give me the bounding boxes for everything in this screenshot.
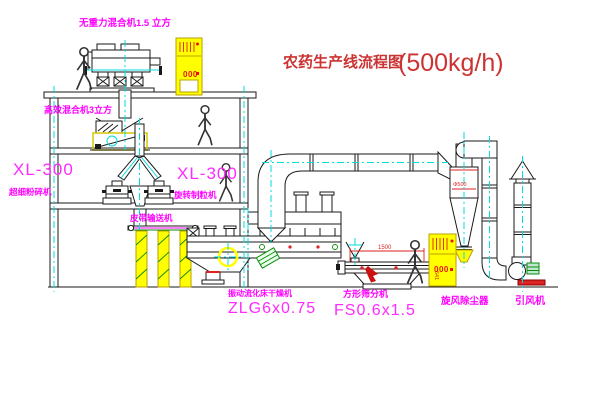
gravity-mixer-machine — [84, 44, 162, 92]
diagram-title: 农药生产线流程图 — [282, 53, 403, 71]
label-granulator-name: 旋转制粒机 — [173, 190, 217, 200]
label-belt-conveyor: 皮带输送机 — [129, 213, 173, 223]
control-cabinet-top — [176, 38, 202, 95]
label-mill-name: 超细粉碎机 — [8, 187, 52, 197]
label-dryer-model: ZLG6x0.75 — [228, 300, 316, 317]
label-cyclone: 旋风除尘器 — [440, 295, 489, 307]
dimension-cyclone-inlet: Φ500 — [453, 182, 467, 188]
dimension-sieve-length: 1500 — [378, 245, 392, 251]
label-gravity-mixer: 无重力混合机1.5 立方 — [78, 17, 171, 29]
panel-indicator-ground: 000 — [434, 265, 449, 274]
label-fan: 引风机 — [515, 294, 545, 307]
label-sieve-name: 方形筛分机 — [343, 288, 388, 299]
granulator-unit-left — [102, 181, 150, 206]
label-sieve-model: FS0.6x1.5 — [334, 302, 416, 319]
induced-draft-fan-machine — [509, 257, 546, 285]
panel-indicator-top: 000 — [183, 70, 198, 79]
label-dryer-name: 振动流化床干燥机 — [228, 288, 292, 298]
cyclone-separator-machine — [450, 141, 506, 280]
granulator-unit-right — [144, 181, 174, 204]
label-high-eff-mixer: 高效混合机3立方 — [44, 104, 112, 115]
label-mill-model: XL-300 — [13, 160, 74, 179]
worker-figure — [198, 106, 212, 146]
diagram-capacity: (500kg/h) — [398, 49, 504, 77]
flow-diagram-canvas: 农药生产线流程图 (500kg/h) 无重力混合机1.5 立方 高效混合机3立方… — [0, 0, 600, 403]
process-line-drawing: 农药生产线流程图 (500kg/h) 无重力混合机1.5 立方 高效混合机3立方… — [0, 0, 600, 403]
label-granulator-model: XL-300 — [177, 164, 238, 183]
